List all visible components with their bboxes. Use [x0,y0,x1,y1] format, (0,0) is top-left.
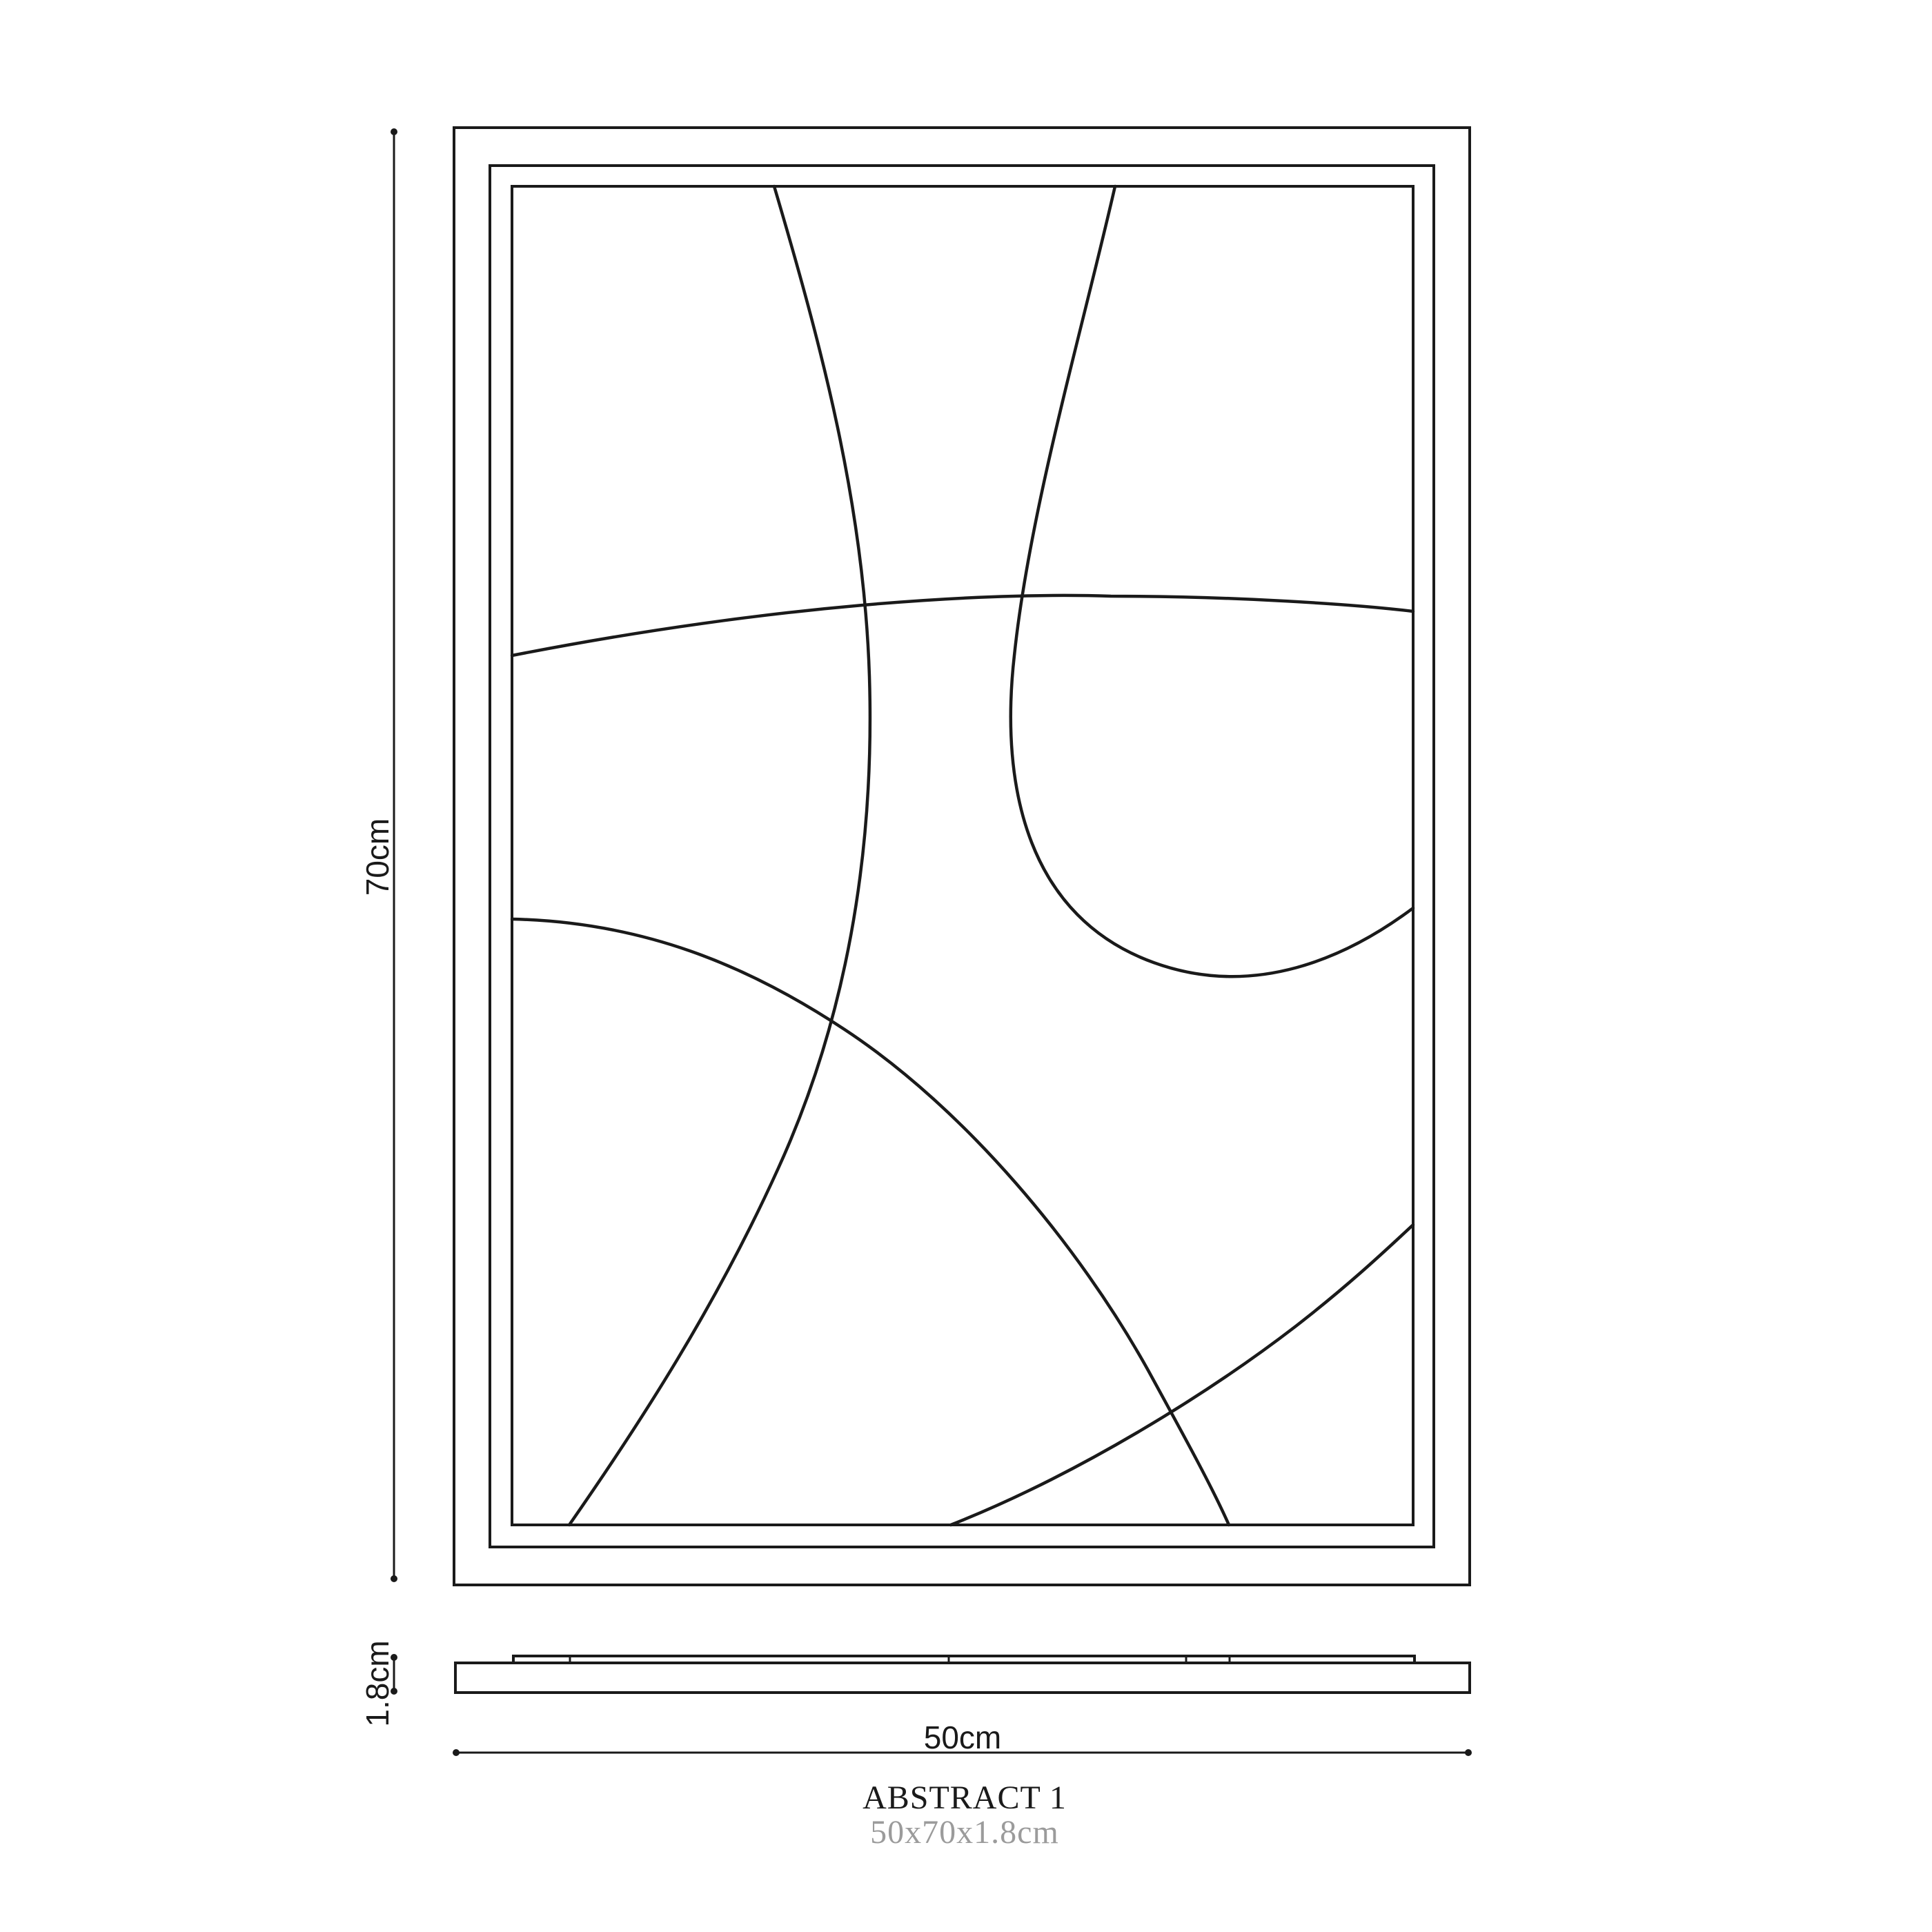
height-dimension-label: 70cm [359,818,395,896]
product-size: 50x70x1.8cm [870,1814,1059,1851]
product-title: ABSTRACT 1 [862,1780,1067,1816]
width-dimension-label: 50cm [924,1719,1001,1755]
height-dimension-dot-top [391,128,397,135]
product-dimension-diagram: 70cm 1.8cm 50cm ABSTRACT 1 50x70x1.8cm [0,0,1932,1932]
height-dimension-dot-bottom [391,1575,397,1582]
thickness-dimension-label: 1.8cm [359,1640,395,1726]
page-background [0,0,1932,1932]
width-dimension-dot-left [453,1749,460,1756]
width-dimension-dot-right [1465,1749,1472,1756]
thickness-dimension: 1.8cm [359,1640,397,1726]
caption: ABSTRACT 1 50x70x1.8cm [862,1780,1067,1851]
